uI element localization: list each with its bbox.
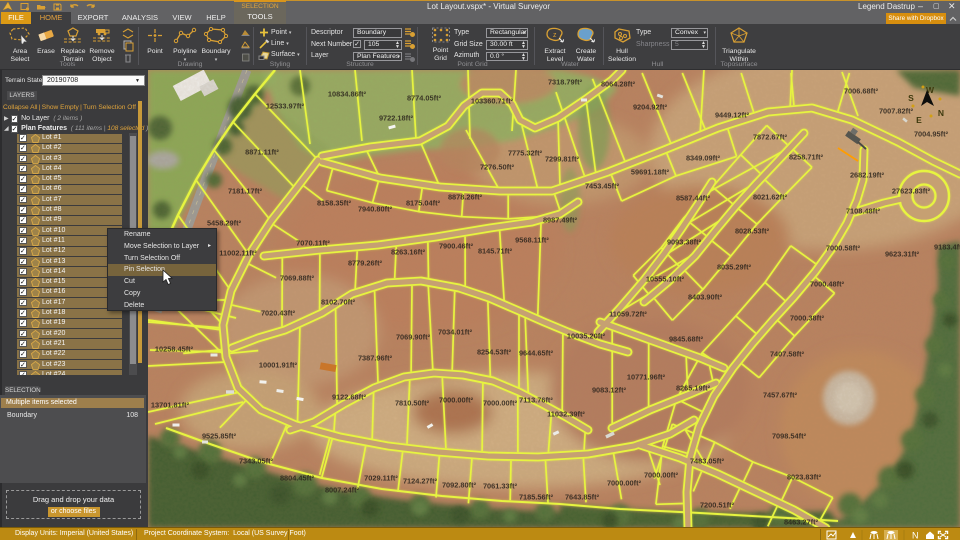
svg-text:10001.91ft²: 10001.91ft² bbox=[259, 361, 298, 370]
svg-text:N: N bbox=[912, 530, 919, 540]
svg-text:7000.58ft²: 7000.58ft² bbox=[826, 244, 861, 253]
svg-text:7387.96ft²: 7387.96ft² bbox=[358, 354, 393, 363]
svg-text:10035.20ft²: 10035.20ft² bbox=[567, 332, 606, 341]
svg-text:7775.32ft²: 7775.32ft² bbox=[508, 149, 543, 158]
svg-text:8064.28ft²: 8064.28ft² bbox=[601, 80, 636, 89]
svg-text:8175.04ft²: 8175.04ft² bbox=[406, 199, 441, 208]
svg-text:8878.26ft²: 8878.26ft² bbox=[448, 193, 483, 202]
svg-text:7343.05ft²: 7343.05ft² bbox=[239, 457, 274, 466]
svg-text:103360.71ft²: 103360.71ft² bbox=[471, 97, 514, 106]
svg-text:8007.24ft²: 8007.24ft² bbox=[325, 486, 360, 495]
svg-text:5458.29ft²: 5458.29ft² bbox=[207, 219, 242, 228]
svg-text:7007.82ft²: 7007.82ft² bbox=[879, 107, 914, 116]
svg-text:10771.96ft²: 10771.96ft² bbox=[627, 373, 666, 382]
svg-text:8349.09ft²: 8349.09ft² bbox=[686, 154, 721, 163]
svg-text:10555.10ft²: 10555.10ft² bbox=[646, 275, 685, 284]
svg-text:11032.39ft²: 11032.39ft² bbox=[547, 410, 585, 419]
svg-text:7000.48ft²: 7000.48ft² bbox=[810, 280, 845, 289]
svg-text:8102.70ft²: 8102.70ft² bbox=[321, 298, 356, 307]
svg-text:7643.85ft²: 7643.85ft² bbox=[565, 493, 600, 502]
svg-text:7108.48ft²: 7108.48ft² bbox=[846, 207, 881, 216]
svg-text:8158.35ft²: 8158.35ft² bbox=[317, 199, 352, 208]
svg-text:10258.45ft²: 10258.45ft² bbox=[155, 345, 194, 354]
svg-text:E: E bbox=[916, 115, 922, 125]
svg-text:7318.79ft²: 7318.79ft² bbox=[548, 78, 583, 87]
svg-text:7407.58ft²: 7407.58ft² bbox=[770, 350, 805, 359]
svg-text:8023.83ft²: 8023.83ft² bbox=[787, 473, 822, 482]
svg-text:7092.80ft²: 7092.80ft² bbox=[442, 481, 477, 490]
svg-text:7000.00ft²: 7000.00ft² bbox=[607, 479, 642, 488]
svg-text:9568.11ft²: 9568.11ft² bbox=[515, 236, 549, 245]
svg-text:7000.00ft²: 7000.00ft² bbox=[644, 471, 679, 480]
svg-text:7000.38ft²: 7000.38ft² bbox=[790, 314, 825, 323]
svg-text:8779.26ft²: 8779.26ft² bbox=[348, 259, 383, 268]
svg-text:7069.88ft²: 7069.88ft² bbox=[280, 274, 315, 283]
svg-text:7029.11ft²: 7029.11ft² bbox=[364, 474, 398, 483]
svg-text:27623.83ft²: 27623.83ft² bbox=[892, 187, 931, 196]
svg-text:12533.97ft²: 12533.97ft² bbox=[266, 102, 305, 111]
svg-text:z: z bbox=[553, 32, 557, 39]
svg-text:8254.53ft²: 8254.53ft² bbox=[477, 348, 512, 357]
svg-text:8804.45ft²: 8804.45ft² bbox=[280, 474, 315, 483]
svg-text:7276.50ft²: 7276.50ft² bbox=[480, 163, 515, 172]
svg-text:9623.31ft²: 9623.31ft² bbox=[885, 250, 920, 259]
svg-text:7124.27ft²: 7124.27ft² bbox=[403, 477, 438, 486]
svg-text:9644.65ft²: 9644.65ft² bbox=[519, 349, 554, 358]
svg-text:7200.51ft²: 7200.51ft² bbox=[700, 501, 735, 510]
svg-text:8587.44ft²: 8587.44ft² bbox=[676, 194, 711, 203]
svg-text:7299.81ft²: 7299.81ft² bbox=[545, 155, 580, 164]
svg-text:8463.27ft²: 8463.27ft² bbox=[784, 518, 819, 527]
svg-text:7872.67ft²: 7872.67ft² bbox=[753, 133, 788, 142]
svg-text:9183.4ft²: 9183.4ft² bbox=[934, 243, 960, 252]
svg-text:7020.43ft²: 7020.43ft² bbox=[261, 309, 296, 318]
svg-text:7000.00ft²: 7000.00ft² bbox=[439, 396, 474, 405]
svg-text:9845.68ft²: 9845.68ft² bbox=[669, 335, 704, 344]
svg-text:9083.12ft²: 9083.12ft² bbox=[592, 386, 627, 395]
svg-text:7000.00ft²: 7000.00ft² bbox=[483, 399, 518, 408]
svg-text:7453.45ft²: 7453.45ft² bbox=[585, 182, 620, 191]
svg-text:7185.56ft²: 7185.56ft² bbox=[519, 493, 554, 502]
svg-text:7900.46ft²: 7900.46ft² bbox=[439, 242, 474, 251]
svg-text:8035.29ft²: 8035.29ft² bbox=[717, 263, 752, 272]
svg-text:S: S bbox=[908, 93, 914, 103]
svg-text:8871.11ft²: 8871.11ft² bbox=[245, 148, 279, 157]
svg-text:8028.53ft²: 8028.53ft² bbox=[735, 227, 770, 236]
svg-text:9204.92ft²: 9204.92ft² bbox=[633, 103, 668, 112]
svg-text:9122.68ft²: 9122.68ft² bbox=[332, 393, 367, 402]
svg-text:7940.80ft²: 7940.80ft² bbox=[358, 205, 393, 214]
svg-text:8774.05ft²: 8774.05ft² bbox=[407, 94, 442, 103]
svg-text:8265.19ft²: 8265.19ft² bbox=[676, 384, 711, 393]
svg-text:8403.90ft²: 8403.90ft² bbox=[688, 293, 723, 302]
svg-text:59691.18ft²: 59691.18ft² bbox=[631, 168, 670, 177]
svg-text:11002.11ft²: 11002.11ft² bbox=[219, 249, 257, 258]
svg-text:7181.17ft²: 7181.17ft² bbox=[228, 187, 263, 196]
svg-text:9525.85ft²: 9525.85ft² bbox=[202, 432, 237, 441]
svg-text:7070.11ft²: 7070.11ft² bbox=[296, 239, 330, 248]
svg-text:2682.19ft²: 2682.19ft² bbox=[850, 171, 885, 180]
svg-text:N: N bbox=[938, 108, 944, 118]
svg-text:7069.90ft²: 7069.90ft² bbox=[396, 333, 431, 342]
svg-text:11059.72ft²: 11059.72ft² bbox=[609, 310, 647, 319]
svg-text:9093.38ft²: 9093.38ft² bbox=[667, 238, 702, 247]
svg-text:13701.81ft²: 13701.81ft² bbox=[151, 401, 190, 410]
svg-text:9449.12ft²: 9449.12ft² bbox=[715, 111, 750, 120]
svg-text:7034.01ft²: 7034.01ft² bbox=[438, 328, 473, 337]
svg-text:7483.05ft²: 7483.05ft² bbox=[690, 457, 725, 466]
svg-text:9722.18ft²: 9722.18ft² bbox=[379, 114, 414, 123]
svg-text:8021.62ft²: 8021.62ft² bbox=[753, 193, 788, 202]
svg-text:7810.50ft²: 7810.50ft² bbox=[395, 399, 430, 408]
svg-text:7004.95ft²: 7004.95ft² bbox=[914, 130, 949, 139]
svg-text:8263.16ft²: 8263.16ft² bbox=[391, 248, 426, 257]
svg-text:7457.67ft²: 7457.67ft² bbox=[763, 391, 798, 400]
svg-text:7061.33ft²: 7061.33ft² bbox=[483, 482, 518, 491]
svg-text:10834.86ft²: 10834.86ft² bbox=[328, 90, 367, 99]
svg-text:8987.49ft²: 8987.49ft² bbox=[543, 216, 578, 225]
svg-text:7113.76ft²: 7113.76ft² bbox=[519, 396, 553, 405]
svg-text:8145.71ft²: 8145.71ft² bbox=[478, 247, 513, 256]
svg-text:7006.68ft²: 7006.68ft² bbox=[844, 87, 879, 96]
svg-text:7098.54ft²: 7098.54ft² bbox=[772, 432, 807, 441]
svg-text:8258.71ft²: 8258.71ft² bbox=[789, 153, 824, 162]
